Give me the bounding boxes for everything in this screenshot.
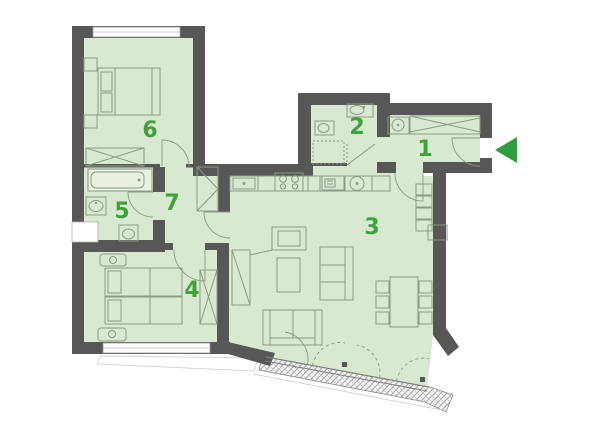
floor-plan-canvas: 1 2 3 4 5 6 7	[0, 0, 600, 443]
room-label-7: 7	[164, 191, 179, 216]
room-label-4: 4	[184, 278, 199, 303]
room-label-6: 6	[142, 118, 157, 143]
room-label-5: 5	[114, 199, 129, 224]
floor-plan-drawing: 1 2 3 4 5 6 7	[0, 0, 600, 443]
passage-floor	[377, 137, 393, 164]
entrance-arrow-icon	[495, 137, 517, 163]
floor-areas	[84, 38, 480, 390]
room-label-3: 3	[364, 215, 379, 240]
room-label-2: 2	[349, 115, 364, 140]
terrace-outline	[97, 356, 258, 371]
wall-recess	[72, 222, 98, 242]
bathtub-icon	[88, 169, 152, 191]
room-label-1: 1	[417, 137, 432, 162]
